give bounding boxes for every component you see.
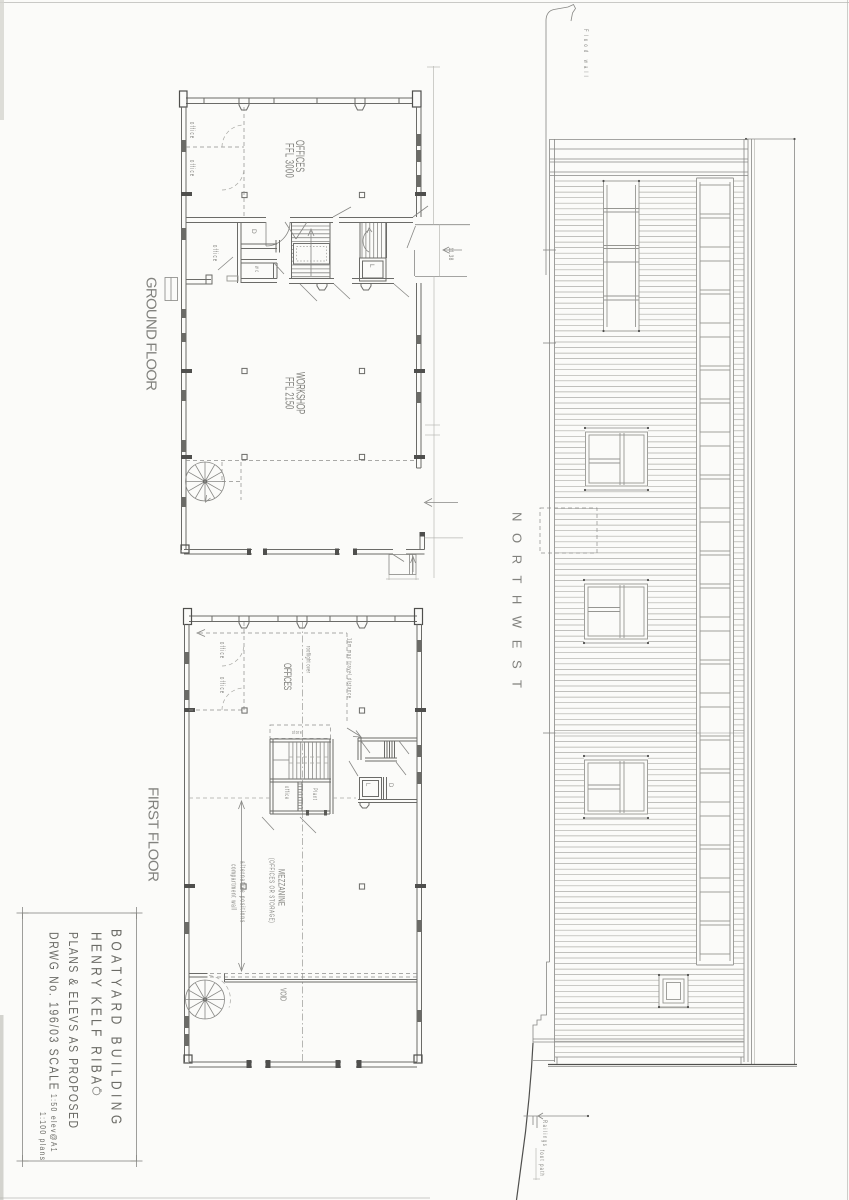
svg-text:rooflight over: rooflight over [304,646,311,673]
svg-text:D: D [250,229,257,234]
svg-text:store: store [292,729,302,735]
svg-text:PLANS & ELEVS AS PROPOSED: PLANS & ELEVS AS PROPOSED [66,932,80,1128]
svg-text:11.38: 11.38 [447,248,454,261]
svg-text:MEZZANINE: MEZZANINE [276,869,287,906]
svg-text:c: c [97,1089,103,1092]
svg-text:compartment wall: compartment wall [229,864,237,910]
svg-text:18m max travel distance: 18m max travel distance [345,638,352,698]
svg-text:OFFICES: OFFICES [282,663,294,690]
svg-text:office: office [283,786,290,799]
svg-text:DRWG No. 196/03 SCALE: DRWG No. 196/03 SCALE [46,932,60,1090]
svg-text:L: L [368,264,375,268]
svg-text:VOID: VOID [278,988,287,1001]
svg-text:alternative positions: alternative positions [238,861,246,922]
svg-text:GROUND FLOOR: GROUND FLOOR [143,277,160,391]
svg-text:FIRST FLOOR: FIRST FLOOR [145,787,162,882]
svg-text:D: D [387,783,393,788]
svg-text:Plant: Plant [311,788,318,800]
svg-text:FFL 2150: FFL 2150 [282,377,295,410]
svg-text:N O R T H W E S T: N O R T H W E S T [510,512,525,688]
svg-text:(OFFICES OR STORAGE): (OFFICES OR STORAGE) [267,858,275,923]
svg-text:FFL 3000: FFL 3000 [282,143,295,178]
